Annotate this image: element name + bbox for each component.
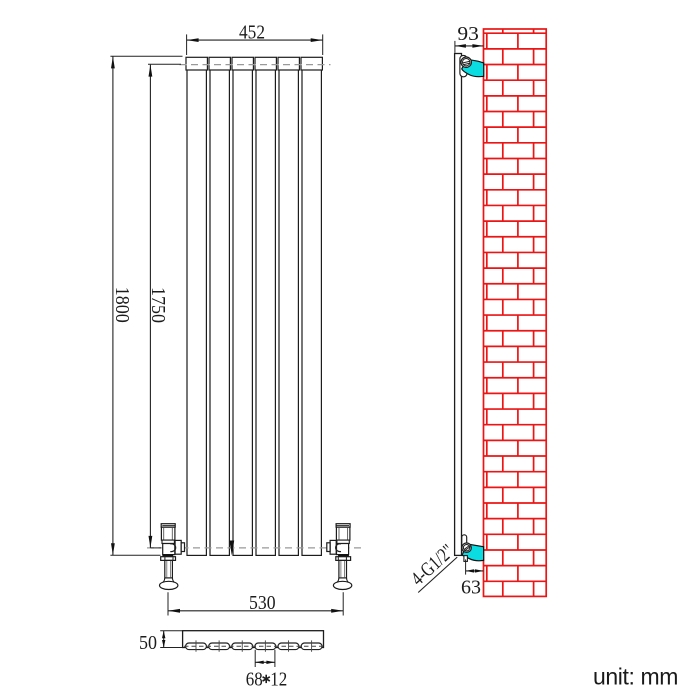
svg-text:1800: 1800 [111,287,133,323]
svg-text:452: 452 [239,21,265,43]
svg-text:1750: 1750 [147,287,169,323]
svg-text:unit: mm: unit: mm [593,663,678,689]
svg-text:50: 50 [139,632,157,654]
svg-text:68: 68 [246,668,263,690]
svg-text:530: 530 [249,592,276,614]
svg-text:12: 12 [270,668,287,690]
svg-text:63: 63 [461,577,481,599]
svg-text:93: 93 [457,23,479,45]
